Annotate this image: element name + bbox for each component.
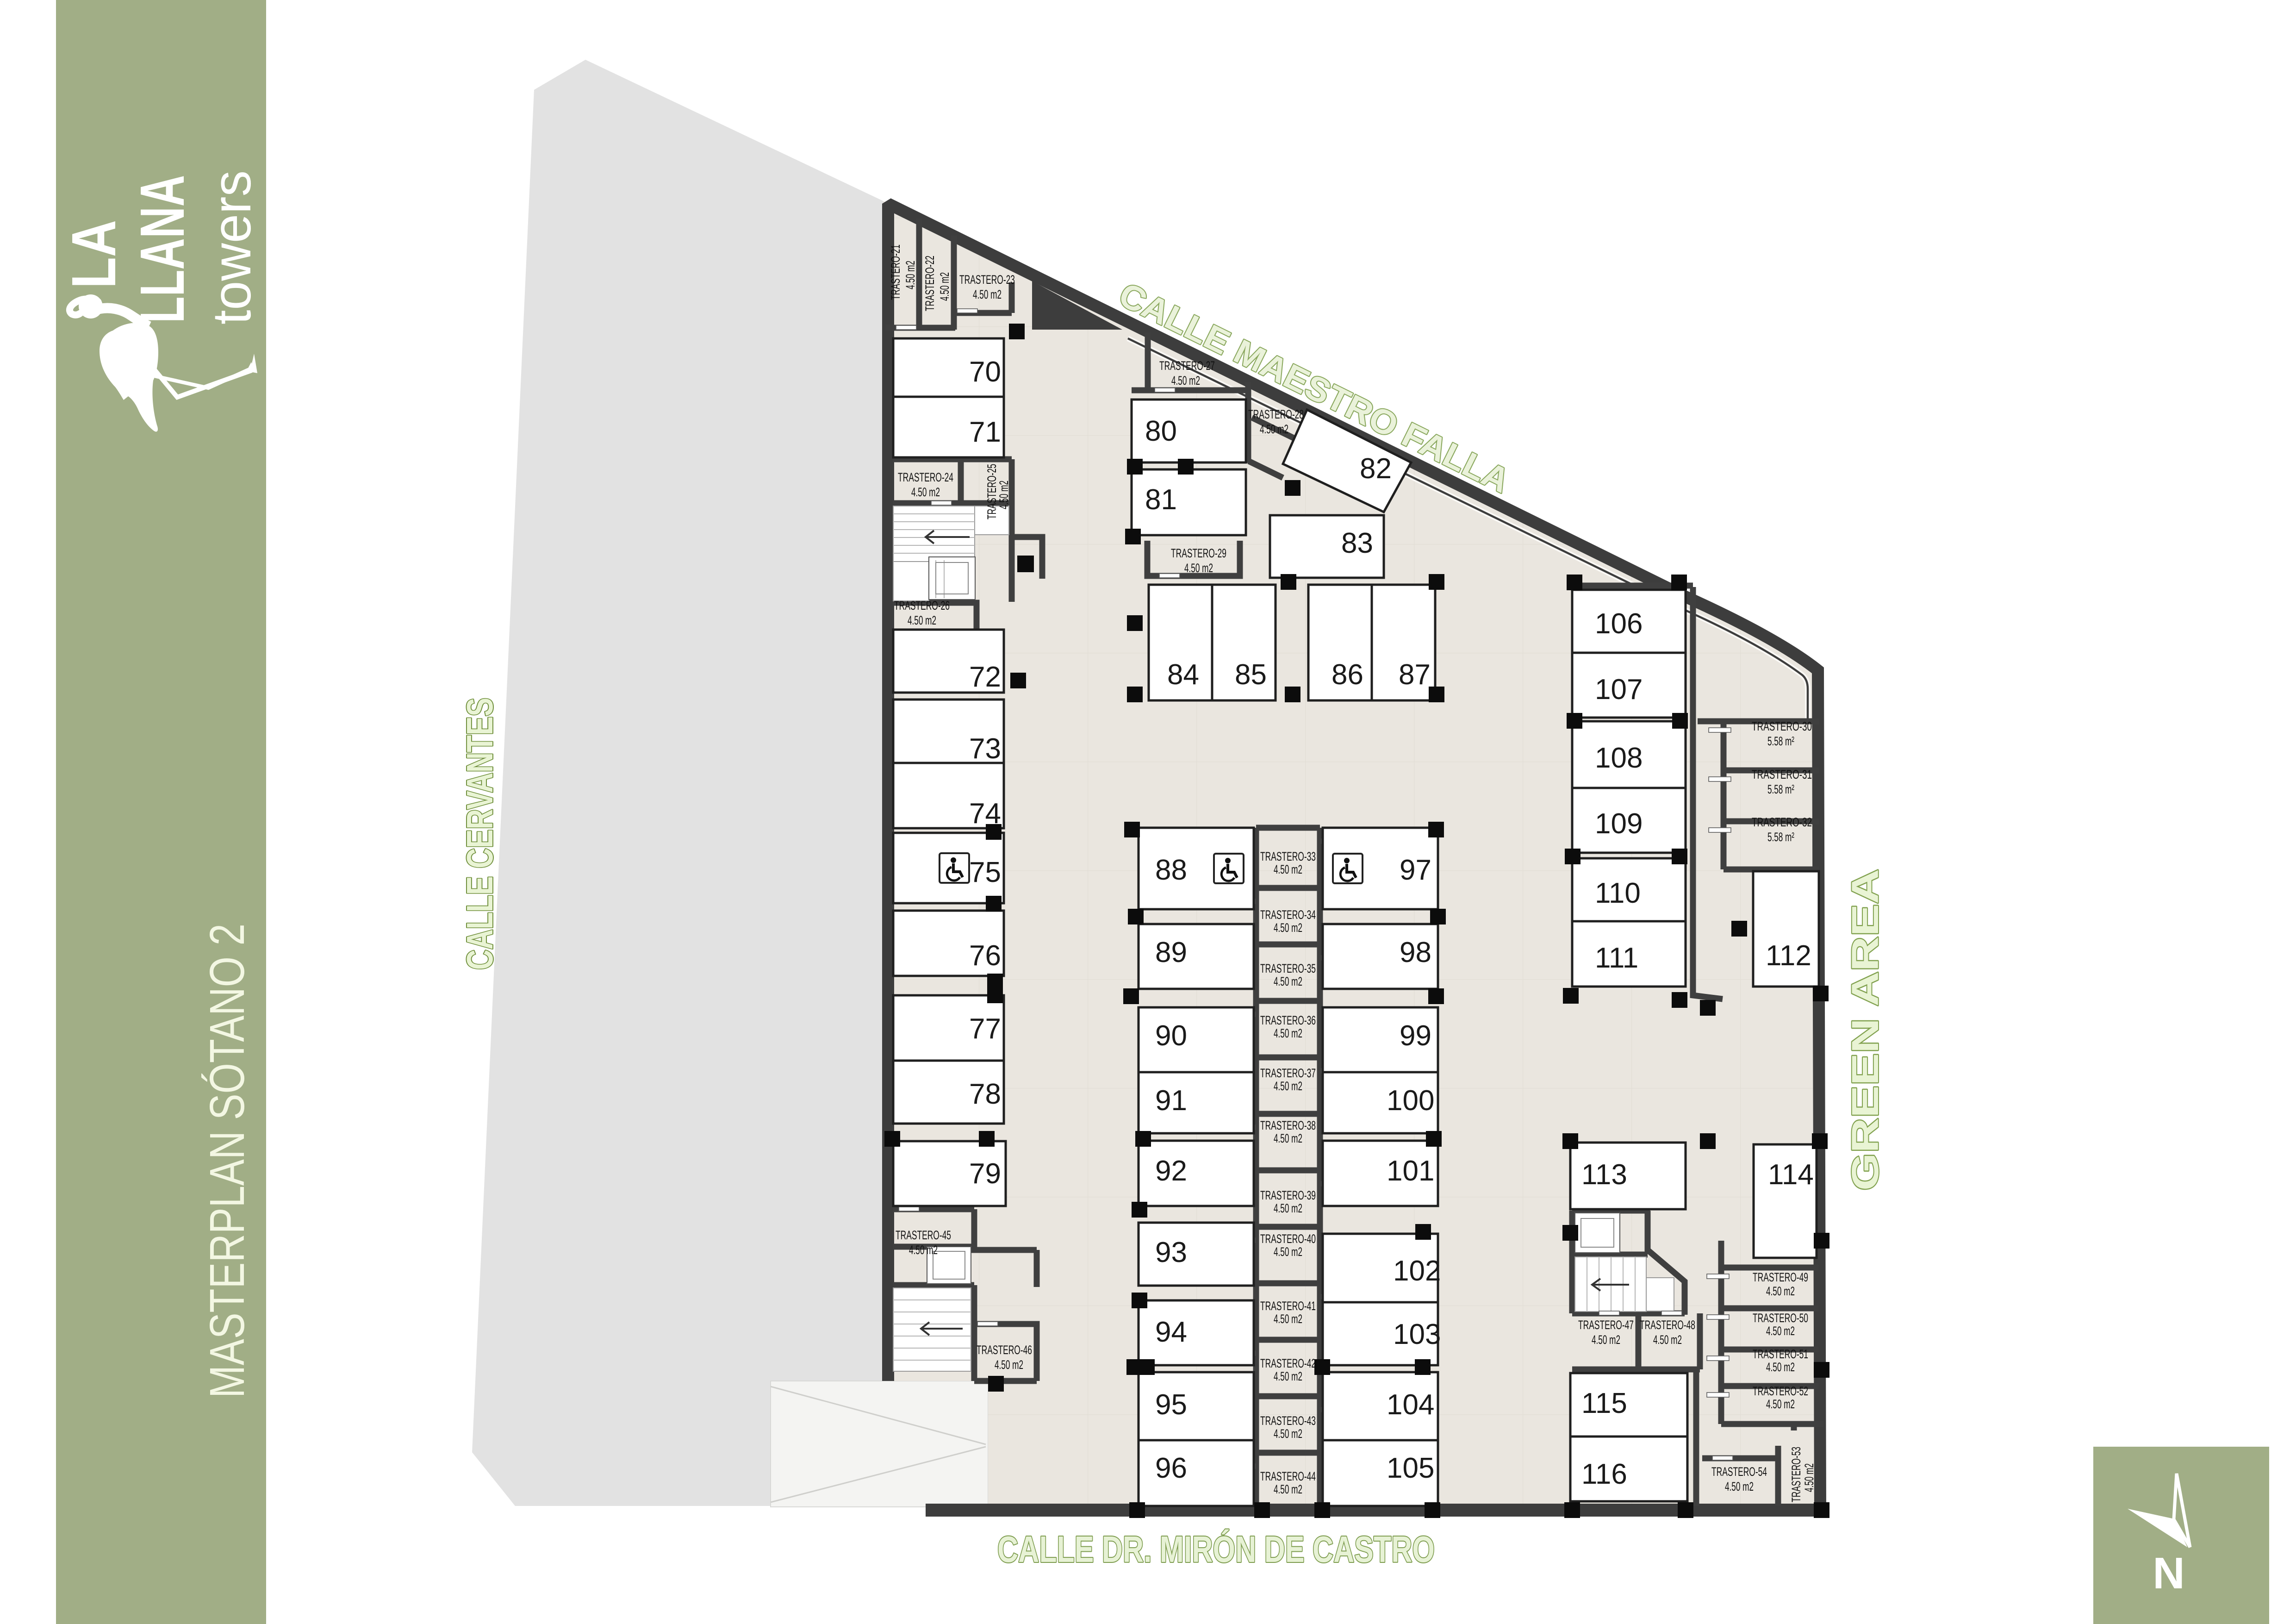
svg-text:4.50 m2: 4.50 m2 xyxy=(1653,1333,1682,1347)
svg-text:TRASTERO-45: TRASTERO-45 xyxy=(896,1228,951,1242)
svg-text:TRASTERO-33: TRASTERO-33 xyxy=(1260,849,1316,863)
svg-text:92: 92 xyxy=(1155,1155,1187,1187)
svg-text:4.50 m2: 4.50 m2 xyxy=(1802,1463,1816,1492)
svg-text:TRASTERO-35: TRASTERO-35 xyxy=(1260,962,1316,975)
svg-text:MASTERPLAN SÓTANO 2: MASTERPLAN SÓTANO 2 xyxy=(200,924,255,1398)
svg-text:103: 103 xyxy=(1393,1318,1441,1350)
svg-text:97: 97 xyxy=(1400,854,1431,886)
svg-text:TRASTERO-49: TRASTERO-49 xyxy=(1753,1270,1808,1284)
svg-text:TRASTERO-46: TRASTERO-46 xyxy=(977,1343,1032,1357)
svg-text:TRASTERO-52: TRASTERO-52 xyxy=(1753,1384,1808,1398)
svg-text:TRASTERO-22: TRASTERO-22 xyxy=(923,256,937,311)
svg-text:LLANA: LLANA xyxy=(127,175,197,323)
svg-text:TRASTERO-44: TRASTERO-44 xyxy=(1260,1469,1316,1483)
svg-text:TRASTERO-29: TRASTERO-29 xyxy=(1171,546,1226,560)
svg-text:4.50 m2: 4.50 m2 xyxy=(995,1358,1023,1372)
svg-text:76: 76 xyxy=(969,940,1001,972)
svg-text:TRASTERO-43: TRASTERO-43 xyxy=(1260,1414,1316,1428)
svg-text:4.50 m2: 4.50 m2 xyxy=(1184,561,1213,575)
svg-text:115: 115 xyxy=(1581,1387,1627,1419)
svg-text:CALLE DR. MIRÓN DE CASTRO: CALLE DR. MIRÓN DE CASTRO xyxy=(997,1529,1435,1570)
svg-text:73: 73 xyxy=(969,733,1001,765)
svg-text:85: 85 xyxy=(1235,659,1267,691)
svg-text:TRASTERO-24: TRASTERO-24 xyxy=(898,470,953,484)
svg-text:TRASTERO-23: TRASTERO-23 xyxy=(959,273,1015,287)
svg-text:4.50 m2: 4.50 m2 xyxy=(1171,374,1200,387)
svg-text:94: 94 xyxy=(1155,1316,1187,1348)
svg-text:110: 110 xyxy=(1595,877,1641,909)
svg-text:113: 113 xyxy=(1581,1159,1627,1191)
svg-text:LA: LA xyxy=(59,220,129,288)
svg-text:84: 84 xyxy=(1167,659,1199,691)
svg-text:78: 78 xyxy=(969,1078,1001,1110)
svg-text:106: 106 xyxy=(1595,608,1643,640)
svg-text:TRASTERO-39: TRASTERO-39 xyxy=(1260,1188,1316,1202)
svg-text:79: 79 xyxy=(969,1158,1001,1190)
svg-text:4.50 m2: 4.50 m2 xyxy=(909,1243,938,1257)
svg-text:105: 105 xyxy=(1387,1452,1434,1484)
svg-text:96: 96 xyxy=(1155,1452,1187,1484)
svg-text:82: 82 xyxy=(1360,453,1392,485)
svg-text:TRASTERO-48: TRASTERO-48 xyxy=(1640,1318,1695,1332)
svg-text:70: 70 xyxy=(969,356,1001,388)
svg-text:TRASTERO-41: TRASTERO-41 xyxy=(1260,1299,1316,1313)
svg-text:TRASTERO-50: TRASTERO-50 xyxy=(1753,1311,1808,1325)
svg-text:72: 72 xyxy=(969,661,1001,693)
svg-text:TRASTERO-40: TRASTERO-40 xyxy=(1260,1232,1316,1246)
svg-text:TRASTERO-28: TRASTERO-28 xyxy=(1248,407,1304,421)
svg-text:4.50 m2: 4.50 m2 xyxy=(1766,1360,1795,1374)
svg-text:75: 75 xyxy=(969,856,1001,888)
svg-text:4.50 m2: 4.50 m2 xyxy=(1274,1312,1302,1326)
svg-text:4.50 m2: 4.50 m2 xyxy=(1274,1201,1302,1215)
svg-text:4.50 m2: 4.50 m2 xyxy=(973,287,1002,301)
svg-text:4.50 m2: 4.50 m2 xyxy=(1274,1131,1302,1145)
svg-text:99: 99 xyxy=(1400,1020,1431,1052)
svg-text:5.58 m²: 5.58 m² xyxy=(1767,782,1794,796)
svg-text:4.50 m2: 4.50 m2 xyxy=(1766,1324,1795,1338)
svg-text:88: 88 xyxy=(1155,854,1187,886)
svg-text:86: 86 xyxy=(1332,659,1363,691)
svg-text:4.50 m2: 4.50 m2 xyxy=(997,481,1011,509)
svg-text:77: 77 xyxy=(969,1013,1001,1045)
svg-text:89: 89 xyxy=(1155,937,1187,968)
svg-text:4.50 m2: 4.50 m2 xyxy=(1592,1333,1620,1347)
svg-text:102: 102 xyxy=(1393,1255,1441,1287)
svg-text:71: 71 xyxy=(969,416,1001,448)
svg-text:TRASTERO-54: TRASTERO-54 xyxy=(1711,1465,1767,1479)
svg-text:112: 112 xyxy=(1766,940,1811,972)
svg-text:4.50 m2: 4.50 m2 xyxy=(911,485,940,499)
svg-text:4.50 m2: 4.50 m2 xyxy=(1725,1480,1754,1493)
svg-text:4.50 m2: 4.50 m2 xyxy=(908,613,936,627)
svg-text:N: N xyxy=(2153,1549,2184,1598)
svg-text:TRASTERO-31: TRASTERO-31 xyxy=(1752,768,1812,781)
svg-text:98: 98 xyxy=(1400,937,1431,968)
svg-text:TRASTERO-26: TRASTERO-26 xyxy=(894,599,950,612)
svg-text:114: 114 xyxy=(1768,1159,1814,1191)
svg-text:4.50 m2: 4.50 m2 xyxy=(1274,1245,1302,1259)
svg-text:TRASTERO-42: TRASTERO-42 xyxy=(1260,1356,1316,1370)
svg-text:TRASTERO-36: TRASTERO-36 xyxy=(1260,1013,1316,1027)
svg-text:111: 111 xyxy=(1595,942,1638,974)
svg-text:107: 107 xyxy=(1595,674,1643,706)
svg-text:93: 93 xyxy=(1155,1237,1187,1268)
svg-text:TRASTERO-51: TRASTERO-51 xyxy=(1753,1347,1808,1361)
svg-text:87: 87 xyxy=(1399,659,1431,691)
svg-text:TRASTERO-47: TRASTERO-47 xyxy=(1578,1318,1634,1332)
svg-text:TRASTERO-32: TRASTERO-32 xyxy=(1752,815,1812,829)
svg-text:81: 81 xyxy=(1145,484,1177,516)
svg-text:116: 116 xyxy=(1581,1458,1627,1490)
svg-text:90: 90 xyxy=(1155,1020,1187,1052)
svg-text:5.58 m²: 5.58 m² xyxy=(1767,734,1794,748)
svg-text:108: 108 xyxy=(1595,742,1643,774)
svg-text:4.50 m2: 4.50 m2 xyxy=(1274,921,1302,935)
svg-text:83: 83 xyxy=(1341,527,1373,559)
svg-text:TRASTERO-30: TRASTERO-30 xyxy=(1752,719,1812,733)
svg-text:4.50 m2: 4.50 m2 xyxy=(1274,974,1302,988)
svg-text:TRASTERO-34: TRASTERO-34 xyxy=(1260,908,1316,922)
svg-text:4.50 m2: 4.50 m2 xyxy=(938,272,952,301)
svg-text:109: 109 xyxy=(1595,808,1643,840)
svg-text:4.50 m2: 4.50 m2 xyxy=(1274,1369,1302,1383)
svg-text:towers: towers xyxy=(201,170,262,325)
svg-text:95: 95 xyxy=(1155,1389,1187,1421)
svg-text:4.50 m2: 4.50 m2 xyxy=(1274,1427,1302,1441)
svg-text:4.50 m2: 4.50 m2 xyxy=(1260,422,1288,436)
svg-text:91: 91 xyxy=(1155,1085,1187,1117)
svg-text:TRASTERO-38: TRASTERO-38 xyxy=(1260,1118,1316,1132)
svg-text:4.50 m2: 4.50 m2 xyxy=(1274,1026,1302,1040)
svg-text:TRASTERO-21: TRASTERO-21 xyxy=(889,244,902,300)
svg-text:80: 80 xyxy=(1145,415,1177,447)
svg-text:4.50 m2: 4.50 m2 xyxy=(1766,1397,1795,1411)
svg-text:TRASTERO-53: TRASTERO-53 xyxy=(1789,1447,1803,1502)
svg-text:4.50 m2: 4.50 m2 xyxy=(1274,1079,1302,1093)
svg-text:GREEN AREA: GREEN AREA xyxy=(1844,869,1886,1191)
svg-text:4.50 m2: 4.50 m2 xyxy=(1274,1482,1302,1496)
svg-text:104: 104 xyxy=(1387,1389,1434,1421)
svg-text:100: 100 xyxy=(1387,1085,1434,1117)
svg-text:4.50 m2: 4.50 m2 xyxy=(903,261,917,289)
svg-text:5.58 m²: 5.58 m² xyxy=(1767,830,1794,844)
svg-text:TRASTERO-27: TRASTERO-27 xyxy=(1159,359,1215,373)
svg-text:4.50 m2: 4.50 m2 xyxy=(1274,862,1302,876)
svg-text:CALLE CERVANTES: CALLE CERVANTES xyxy=(459,698,500,970)
svg-text:101: 101 xyxy=(1387,1155,1434,1187)
svg-text:4.50 m2: 4.50 m2 xyxy=(1766,1284,1795,1298)
svg-text:TRASTERO-37: TRASTERO-37 xyxy=(1260,1066,1316,1080)
